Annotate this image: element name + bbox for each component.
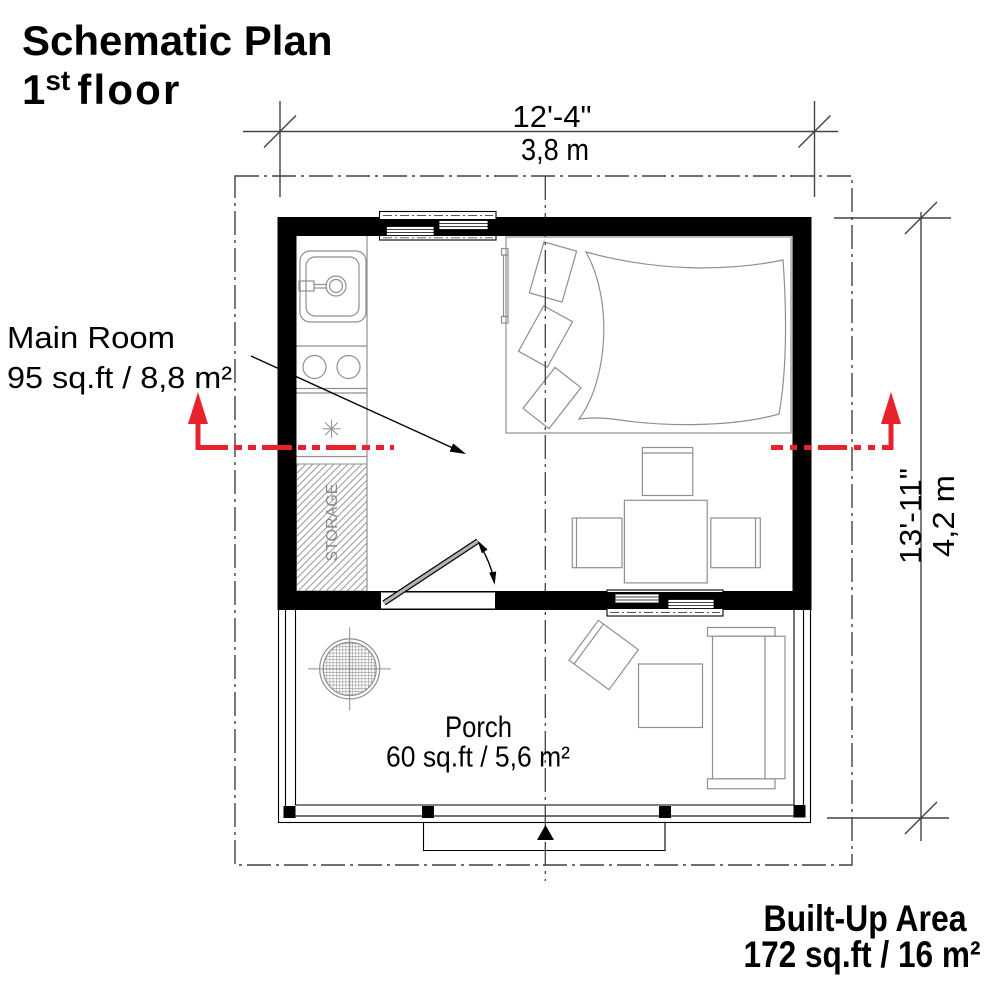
svg-text:4,2 m: 4,2 m — [926, 475, 961, 557]
svg-text:Schematic Plan: Schematic Plan — [22, 17, 332, 64]
svg-text:95 sq.ft / 8,8 m²: 95 sq.ft / 8,8 m² — [7, 360, 232, 395]
svg-text:Built-Up Area: Built-Up Area — [764, 898, 967, 939]
svg-text:13'-11": 13'-11" — [893, 468, 928, 564]
svg-text:60 sq.ft / 5,6 m²: 60 sq.ft / 5,6 m² — [386, 742, 570, 774]
svg-text:Main Room: Main Room — [7, 320, 175, 355]
svg-text:172 sq.ft / 16 m²: 172 sq.ft / 16 m² — [744, 934, 981, 975]
svg-text:3,8 m: 3,8 m — [521, 132, 589, 167]
svg-text:12'-4": 12'-4" — [513, 99, 592, 134]
svg-text:Porch: Porch — [445, 711, 512, 744]
svg-text:STORAGE: STORAGE — [324, 484, 341, 562]
